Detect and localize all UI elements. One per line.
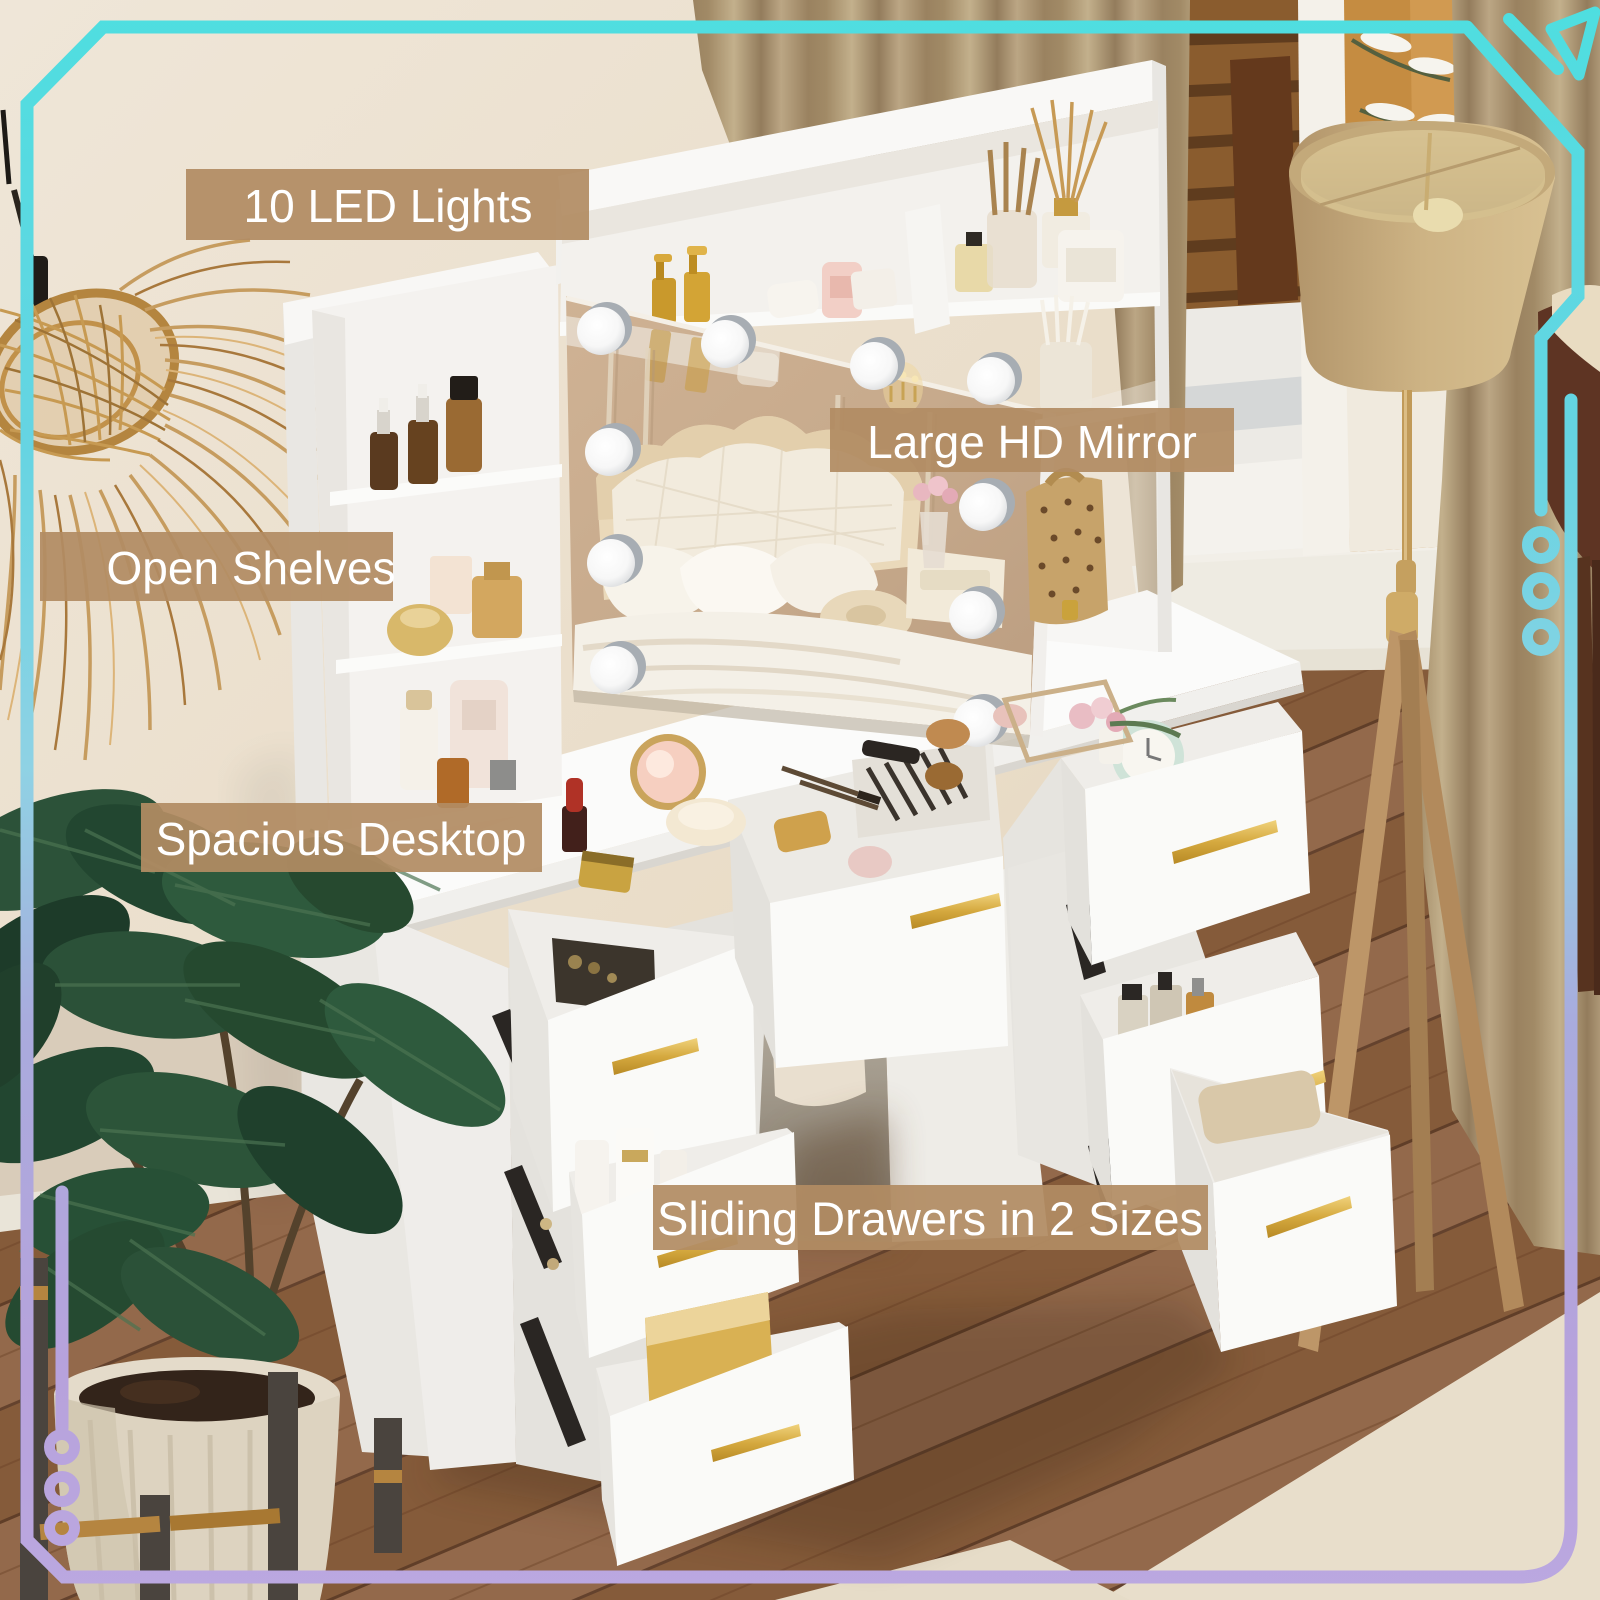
svg-text:Sliding Drawers in 2 Sizes: Sliding Drawers in 2 Sizes: [657, 1192, 1203, 1245]
svg-text:Large HD Mirror: Large HD Mirror: [867, 416, 1197, 468]
svg-text:10 LED Lights: 10 LED Lights: [244, 180, 533, 232]
svg-text:Spacious Desktop: Spacious Desktop: [156, 813, 527, 865]
svg-text:Open Shelves: Open Shelves: [107, 542, 396, 594]
